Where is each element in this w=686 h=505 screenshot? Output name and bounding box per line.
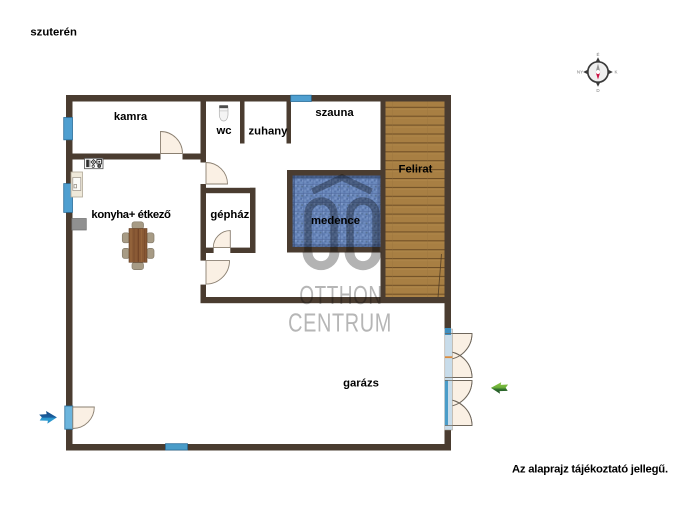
svg-text:zuhany: zuhany	[249, 126, 289, 138]
svg-text:Felirat: Felirat	[399, 164, 433, 176]
svg-text:garázs: garázs	[343, 378, 379, 390]
svg-text:OTTHON: OTTHON	[299, 281, 382, 309]
svg-text:Az alaprajz tájékoztató jelleg: Az alaprajz tájékoztató jellegű.	[512, 463, 668, 475]
svg-text:gépház: gépház	[210, 209, 249, 221]
svg-text:szuterén: szuterén	[30, 27, 77, 39]
svg-text:medence: medence	[311, 215, 360, 227]
svg-text:K: K	[614, 70, 617, 75]
svg-text:CENTRUM: CENTRUM	[288, 308, 392, 337]
svg-text:NY: NY	[577, 70, 583, 75]
svg-text:konyha+ étkező: konyha+ étkező	[91, 209, 171, 221]
svg-text:kamra: kamra	[114, 111, 148, 123]
svg-text:wc: wc	[215, 125, 231, 137]
svg-text:É: É	[596, 51, 599, 57]
svg-text:szauna: szauna	[315, 107, 354, 119]
